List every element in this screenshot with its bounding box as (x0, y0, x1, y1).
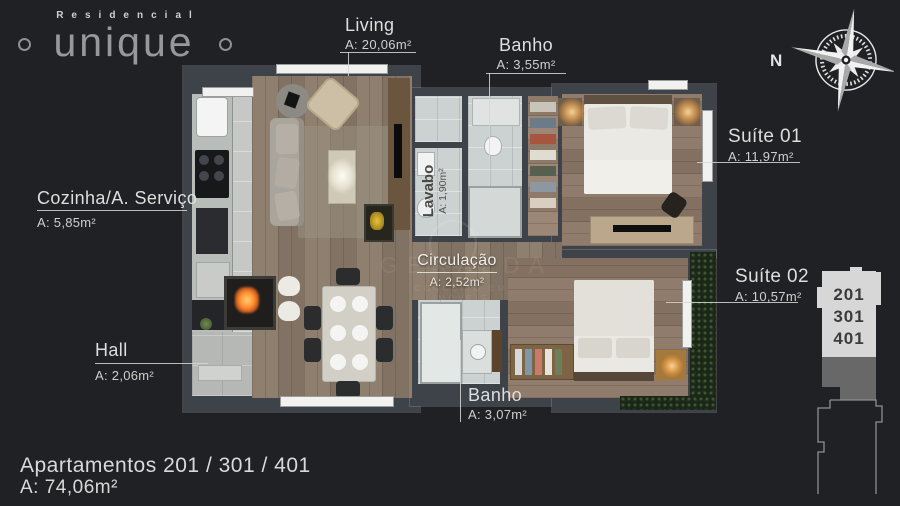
accent-chair (278, 276, 300, 296)
leader-line (486, 73, 566, 74)
room-area: A: 2,06m² (95, 368, 154, 383)
label-suite1: Suíte 01 A: 11,97m² (728, 127, 802, 164)
label-suite2: Suíte 02 A: 10,57m² (735, 267, 809, 304)
label-hall-area: A: 2,06m² (95, 366, 154, 383)
window-suite1-top (648, 80, 688, 90)
living-sofa (270, 118, 304, 226)
label-banho1: Banho A: 3,55m² (486, 36, 566, 72)
floorplan-page: Residencial unique N (0, 0, 900, 506)
room-name: Suíte 02 (735, 267, 809, 287)
leader-line (37, 210, 187, 211)
badge-floor: 401 (833, 329, 864, 348)
kitchen-cooktop (195, 150, 229, 198)
leader-line (95, 363, 208, 364)
living-art-frame (364, 204, 394, 242)
window-kitchen (202, 87, 254, 97)
closet-clothes (530, 182, 556, 192)
label-banho2: Banho A: 3,07m² (468, 386, 527, 422)
logo-main-text: unique (20, 22, 228, 63)
logo-ring-right-icon (219, 38, 232, 51)
closet-clothes (530, 166, 556, 176)
fireplace (224, 276, 276, 330)
closet-clothes (530, 134, 556, 144)
suite1-dresser (590, 216, 694, 244)
suite2-wardrobe (510, 344, 574, 380)
bath2-vanity (462, 330, 492, 374)
suite1-lamp-glow (552, 92, 592, 132)
kitchen-oven (196, 208, 228, 254)
room-area: A: 3,55m² (486, 57, 566, 72)
label-cozinha-area: A: 5,85m² (37, 213, 96, 230)
building-floor-badge: 201 301 401 (810, 256, 900, 496)
bath1-vanity (472, 98, 520, 126)
leader-line (348, 52, 349, 76)
entry-door (280, 396, 394, 407)
living-lamp-glow (322, 152, 362, 200)
leader-line (666, 302, 798, 303)
room-name: Living (345, 16, 412, 35)
suite1-bed (584, 104, 672, 194)
living-side-table (276, 84, 310, 118)
compass-north-label: N (770, 51, 782, 70)
room-name: Hall (95, 341, 128, 360)
logo-wordmark: unique (53, 19, 194, 65)
badge-floor: 301 (833, 307, 864, 326)
bath1-shower (468, 186, 522, 238)
room-area: A: 5,85m² (37, 215, 96, 230)
room-area: A: 3,07m² (468, 407, 527, 422)
suite1-lamp-glow (668, 92, 708, 132)
dining-chair (304, 338, 321, 362)
bath2-shower (420, 302, 462, 384)
hedge-right (690, 252, 716, 408)
dining-chair (336, 268, 360, 285)
badge-floor: 201 (833, 285, 864, 304)
label-cozinha: Cozinha/A. Serviço (37, 189, 197, 208)
closet-clothes (530, 198, 556, 208)
room-area: A: 1,90m² (437, 146, 449, 236)
label-living: Living A: 20,06m² (345, 16, 412, 52)
room-name: Lavabo (420, 146, 437, 236)
bath1-toilet (484, 136, 502, 156)
bath2-cabinet (492, 330, 502, 372)
room-name: Banho (486, 36, 566, 55)
apartments-title: Apartamentos 201 / 301 / 401 (20, 454, 311, 478)
apartments-total-area: A: 74,06m² (20, 477, 118, 499)
room-name: Cozinha/A. Serviço (37, 189, 197, 208)
dining-chair (376, 338, 393, 362)
room-name: Banho (468, 386, 527, 405)
label-circulacao: Circulação A: 2,52m² (408, 252, 506, 289)
leader-line (460, 340, 461, 422)
closet-clothes (530, 150, 556, 160)
window-suite2 (682, 280, 692, 348)
room-hall (192, 332, 252, 396)
room-area: A: 2,52m² (408, 275, 506, 289)
hall-doormat (198, 365, 242, 381)
label-hall: Hall (95, 341, 128, 360)
suite1-headboard (584, 95, 672, 104)
brand-logo: Residencial unique (20, 10, 228, 63)
room-bath1-entry (415, 96, 462, 142)
dining-chair (376, 306, 393, 330)
dining-table (322, 286, 376, 382)
accent-chair (278, 301, 300, 321)
leader-line (489, 73, 490, 185)
suite2-bed (574, 280, 654, 374)
label-lavabo: Lavabo A: 1,90m² (420, 146, 456, 236)
suite2-headboard (574, 372, 654, 381)
kitchen-sink (196, 97, 228, 137)
leader-line (340, 52, 416, 53)
room-area: A: 20,06m² (345, 37, 412, 52)
kitchen-plant (200, 318, 212, 330)
room-name: Suíte 01 (728, 127, 802, 147)
window-living (276, 64, 388, 74)
logo-ring-left-icon (18, 38, 31, 51)
suite2-lamp-glow (656, 350, 688, 382)
hedge-bottom (620, 396, 716, 410)
compass-rose-icon: N (766, 4, 894, 114)
leader-line (697, 162, 800, 163)
room-name: Circulação (417, 253, 497, 273)
dining-chair (304, 306, 321, 330)
